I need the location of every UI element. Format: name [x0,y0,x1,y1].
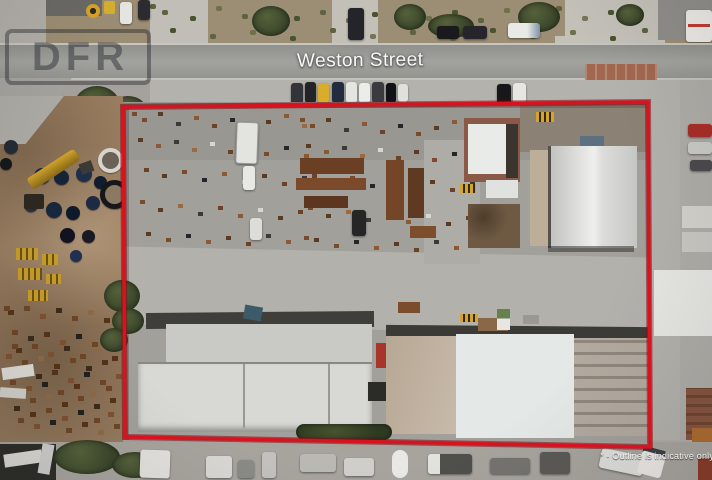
property-outline [123,102,650,447]
outline-disclaimer: * - Outline is indicative only [600,451,712,461]
property-outline [123,102,650,447]
watermark-text: DFR [27,35,129,80]
listing-aerial-photo: DFR Weston Street * - Outline is indicat… [0,0,712,480]
street-name-label: Weston Street [297,49,424,72]
agency-watermark: DFR [5,29,151,85]
